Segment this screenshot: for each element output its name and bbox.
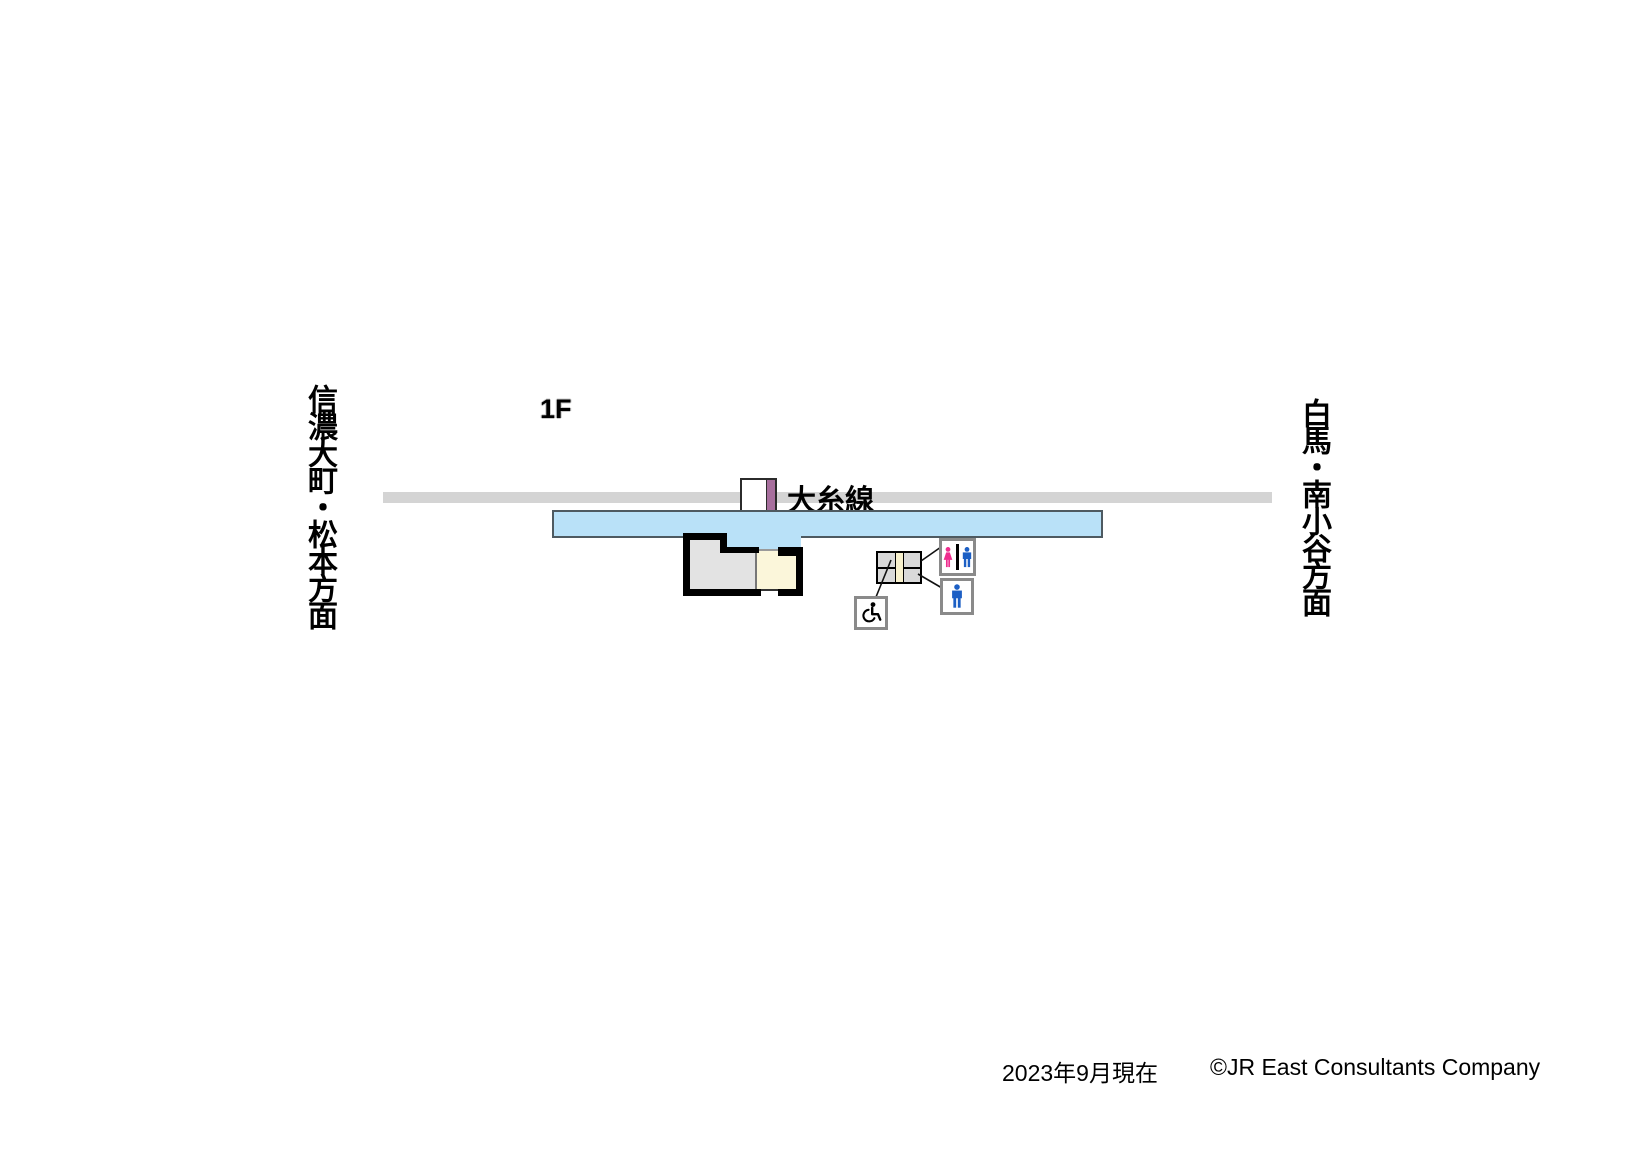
room-divider-line (755, 553, 757, 589)
floor-label: 1F (540, 394, 572, 425)
direction-label-left: 信濃大町・松本方面 (303, 384, 336, 627)
mens-room-sign (940, 578, 974, 615)
building-room-gray (720, 553, 756, 589)
restroom-sign (939, 538, 976, 576)
building-wall (683, 533, 690, 596)
wheelchair-icon (859, 601, 883, 625)
building-wall (683, 589, 761, 596)
leader-lines (0, 0, 1642, 1162)
wheelchair-accessible-sign (854, 596, 888, 630)
stairs-step-line (904, 567, 920, 569)
male-icon (950, 583, 964, 610)
female-icon (942, 545, 954, 570)
station-floor-map: 信濃大町・松本方面 白馬・南小谷方面 1F 大糸線 (0, 0, 1642, 1162)
stairs-icon (876, 551, 922, 584)
footer-copyright: ©JR East Consultants Company (1210, 1054, 1540, 1081)
footer-date: 2023年9月現在 (1002, 1054, 1158, 1088)
direction-label-right: 白馬・南小谷方面 (1297, 398, 1330, 614)
door-opening-top (758, 549, 778, 551)
building-room-gray (690, 540, 720, 589)
track-structure-box (740, 478, 777, 513)
platform (552, 510, 1103, 538)
stairs-step-line (878, 567, 895, 569)
building-wall (720, 547, 759, 553)
leader-line (921, 547, 941, 561)
male-icon (961, 545, 973, 570)
stairs-landing-strip (895, 553, 904, 582)
restroom-divider-bar (956, 544, 959, 570)
building-wall (778, 589, 803, 596)
door-opening-bottom (761, 589, 778, 591)
purple-stripe (766, 480, 775, 511)
